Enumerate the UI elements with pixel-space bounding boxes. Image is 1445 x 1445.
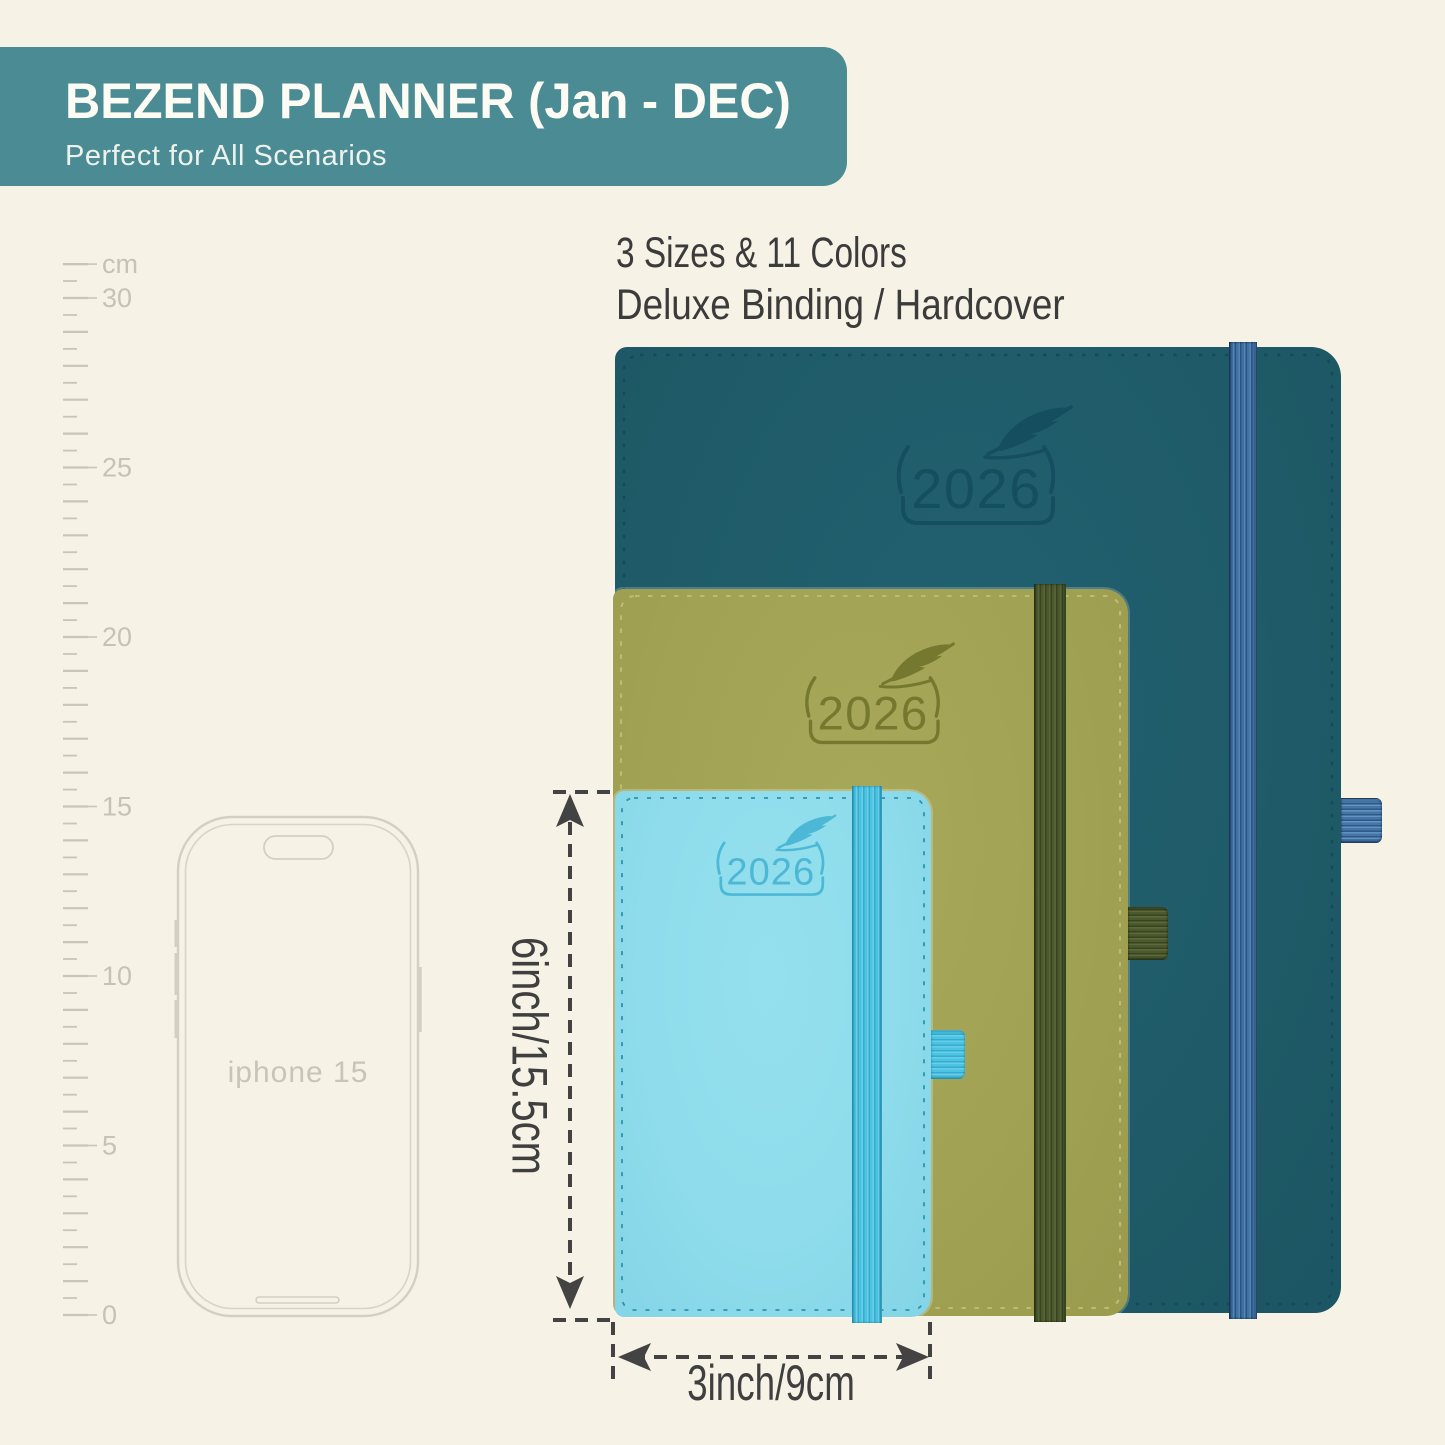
svg-text:iphone 15: iphone 15 [228, 1056, 369, 1089]
